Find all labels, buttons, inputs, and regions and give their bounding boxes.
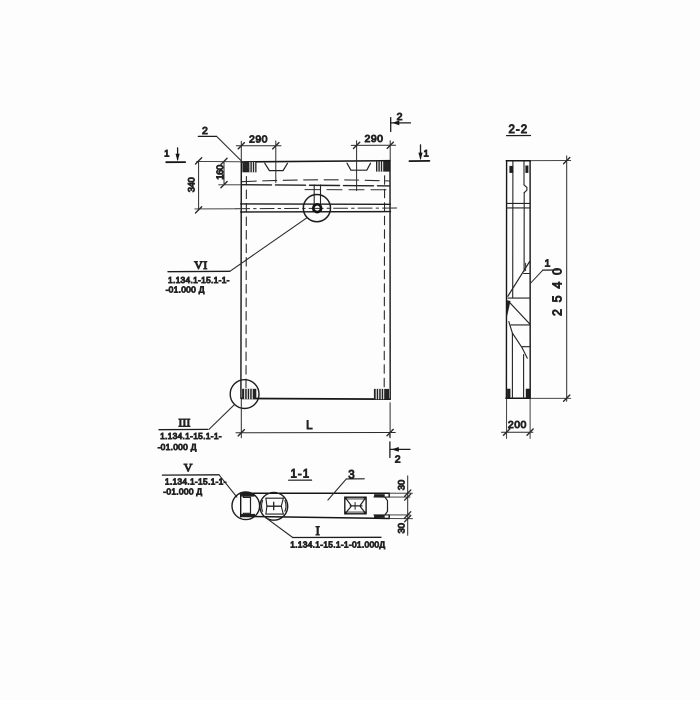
- svg-text:1.134.1-15.1-1-: 1.134.1-15.1-1-: [160, 431, 222, 441]
- svg-text:-01.000 Д: -01.000 Д: [158, 442, 197, 452]
- svg-text:1: 1: [423, 149, 428, 160]
- svg-text:1: 1: [544, 258, 550, 270]
- svg-text:2: 2: [202, 125, 208, 137]
- svg-text:1: 1: [164, 149, 169, 160]
- svg-text:290: 290: [364, 133, 383, 145]
- svg-text:2-2: 2-2: [508, 124, 528, 136]
- svg-text:160: 160: [215, 165, 226, 180]
- svg-text:2: 2: [397, 111, 403, 123]
- svg-text:-01.000 Д: -01.000 Д: [166, 284, 205, 294]
- svg-text:L: L: [306, 420, 313, 432]
- svg-text:1.134.1-15.1-1-01.000Д: 1.134.1-15.1-1-01.000Д: [290, 540, 385, 550]
- svg-text:V: V: [184, 460, 193, 474]
- svg-text:30: 30: [396, 523, 407, 534]
- svg-text:1.134.1-15.1-1-: 1.134.1-15.1-1-: [165, 476, 227, 486]
- svg-text:290: 290: [249, 133, 268, 145]
- svg-text:I: I: [316, 523, 320, 538]
- svg-text:340: 340: [187, 177, 198, 192]
- svg-text:1-1: 1-1: [290, 469, 310, 481]
- svg-text:-01.000 Д: -01.000 Д: [163, 486, 202, 496]
- svg-text:1.134.1-15.1-1-: 1.134.1-15.1-1-: [168, 275, 230, 285]
- svg-text:30: 30: [396, 480, 407, 491]
- svg-text:2: 2: [395, 453, 401, 465]
- svg-text:III: III: [178, 415, 190, 429]
- svg-text:200: 200: [508, 419, 527, 431]
- svg-text:VI: VI: [194, 258, 208, 272]
- svg-text:3: 3: [348, 470, 354, 482]
